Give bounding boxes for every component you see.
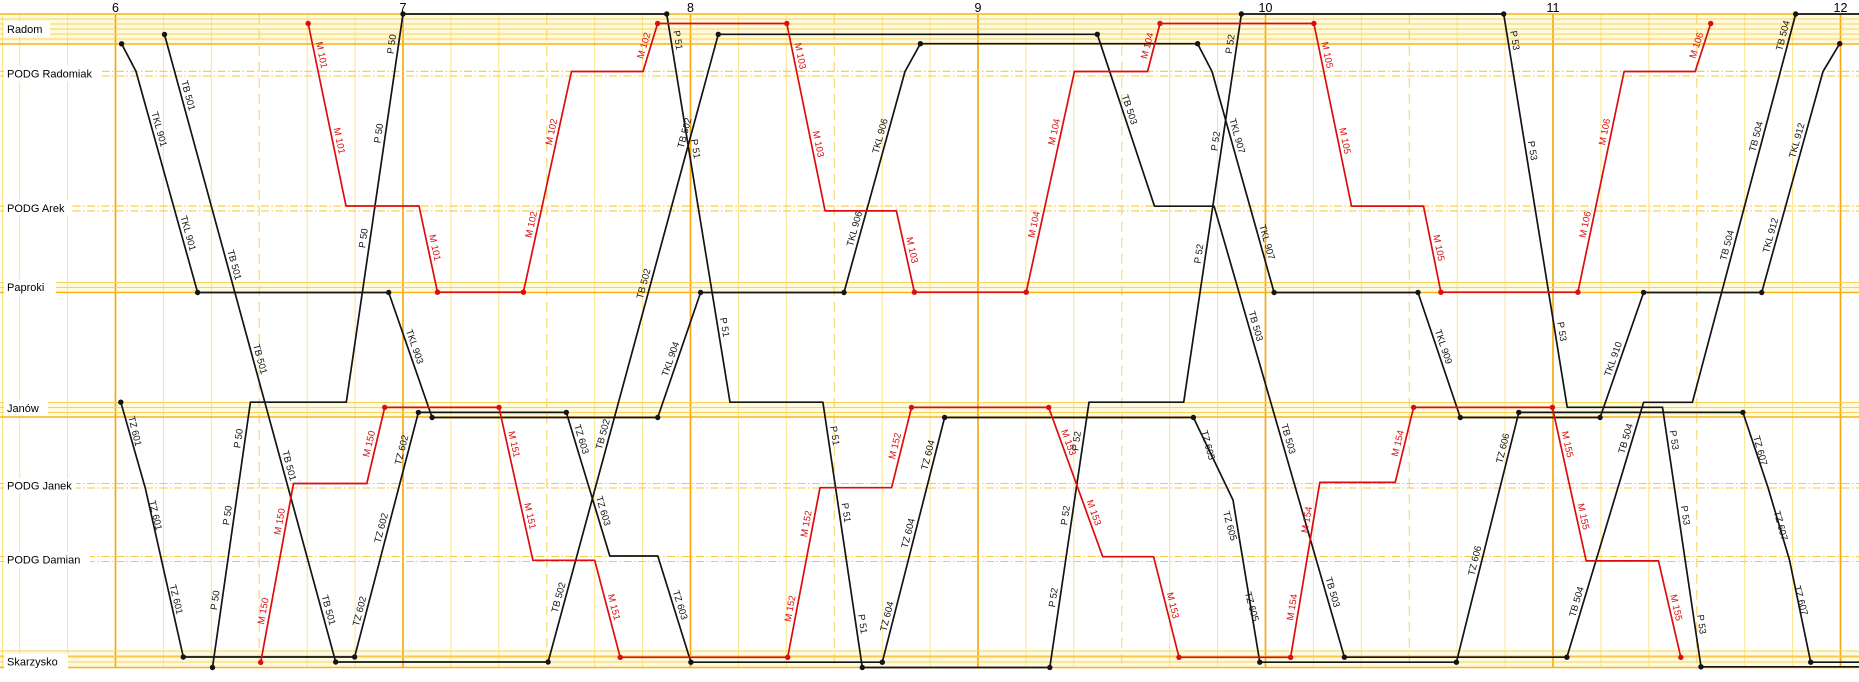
svg-text:PODG Arek: PODG Arek xyxy=(7,203,65,215)
svg-text:7: 7 xyxy=(400,1,407,15)
svg-text:Skarzysko: Skarzysko xyxy=(7,657,58,669)
svg-text:PODG Janek: PODG Janek xyxy=(7,481,72,493)
svg-text:9: 9 xyxy=(975,1,982,15)
svg-text:6: 6 xyxy=(112,1,119,15)
svg-text:11: 11 xyxy=(1547,1,1560,15)
svg-text:PODG Damian: PODG Damian xyxy=(7,555,80,567)
svg-text:Janów: Janów xyxy=(7,403,39,415)
svg-text:8: 8 xyxy=(687,1,694,15)
svg-text:Paproki: Paproki xyxy=(7,282,44,294)
svg-text:Radom: Radom xyxy=(7,24,42,36)
svg-text:12: 12 xyxy=(1834,1,1848,15)
svg-text:PODG Radomiak: PODG Radomiak xyxy=(7,69,92,81)
svg-text:10: 10 xyxy=(1259,1,1273,15)
